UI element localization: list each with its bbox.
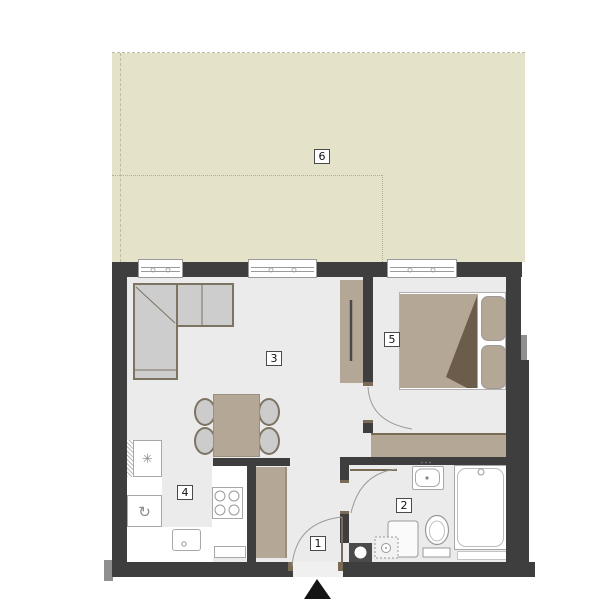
kitchen-cabinet-end [214, 546, 246, 558]
room-label-bedroom: 5 [384, 332, 400, 347]
window [138, 259, 183, 278]
wall-living-bedroom [363, 262, 373, 385]
door-jamb [340, 511, 349, 514]
hallway-wardrobe [256, 467, 287, 558]
room-label-bathroom: 2 [396, 498, 412, 513]
wall-top [317, 262, 387, 277]
terrace-border-top [112, 52, 525, 53]
wall-bottom-left [112, 562, 293, 577]
entrance-jamb [288, 562, 293, 571]
door-jamb [363, 420, 373, 423]
bathtub-inner [457, 468, 504, 547]
wall-bathroom-west-lower [340, 513, 349, 543]
entrance-marker-icon [304, 579, 331, 599]
bedroom-wardrobe [371, 433, 507, 457]
terrace-border-left [120, 53, 121, 262]
floor-plan: ✳ ↻ 1 2 3 4 5 6 [0, 0, 600, 600]
tv-sideboard [340, 280, 363, 383]
door-jamb [363, 382, 373, 386]
bed-pillow [481, 345, 506, 389]
bed-pillow [481, 296, 506, 341]
wall-accent [521, 335, 527, 362]
wall-right-upper [506, 262, 521, 360]
wall-top [183, 262, 248, 277]
stove [212, 487, 243, 519]
door-jamb [340, 480, 349, 483]
kitchen-sink [172, 529, 201, 551]
wall-stub-bedroom-door [363, 423, 373, 433]
wall-right-lower [506, 360, 529, 577]
wall-left [112, 262, 127, 577]
dining-table [213, 394, 260, 457]
entrance-threshold [293, 562, 343, 577]
terrace-inner-line-v [382, 175, 383, 262]
wall-kitchen-hall-vertical [247, 458, 256, 562]
room-label-terrace: 6 [314, 149, 330, 164]
room-label-kitchen: 4 [177, 485, 193, 500]
dining-chair [258, 427, 280, 455]
service-shaft [349, 543, 372, 562]
washbasin [412, 466, 444, 490]
room-label-hallway: 1 [310, 536, 326, 551]
entrance-jamb [338, 562, 343, 571]
terrace-inner-line-h [112, 175, 382, 176]
dishwasher-icon: ↻ [127, 495, 162, 527]
fridge-icon: ✳ [133, 440, 162, 477]
wall-bedroom-bathroom [340, 457, 507, 465]
sofa-vertical-section [133, 283, 178, 380]
bathtub-step [457, 551, 507, 560]
window [248, 259, 317, 278]
room-label-living: 3 [266, 351, 282, 366]
bed-blanket [400, 294, 478, 388]
dining-chair [258, 398, 280, 426]
window [387, 259, 457, 278]
